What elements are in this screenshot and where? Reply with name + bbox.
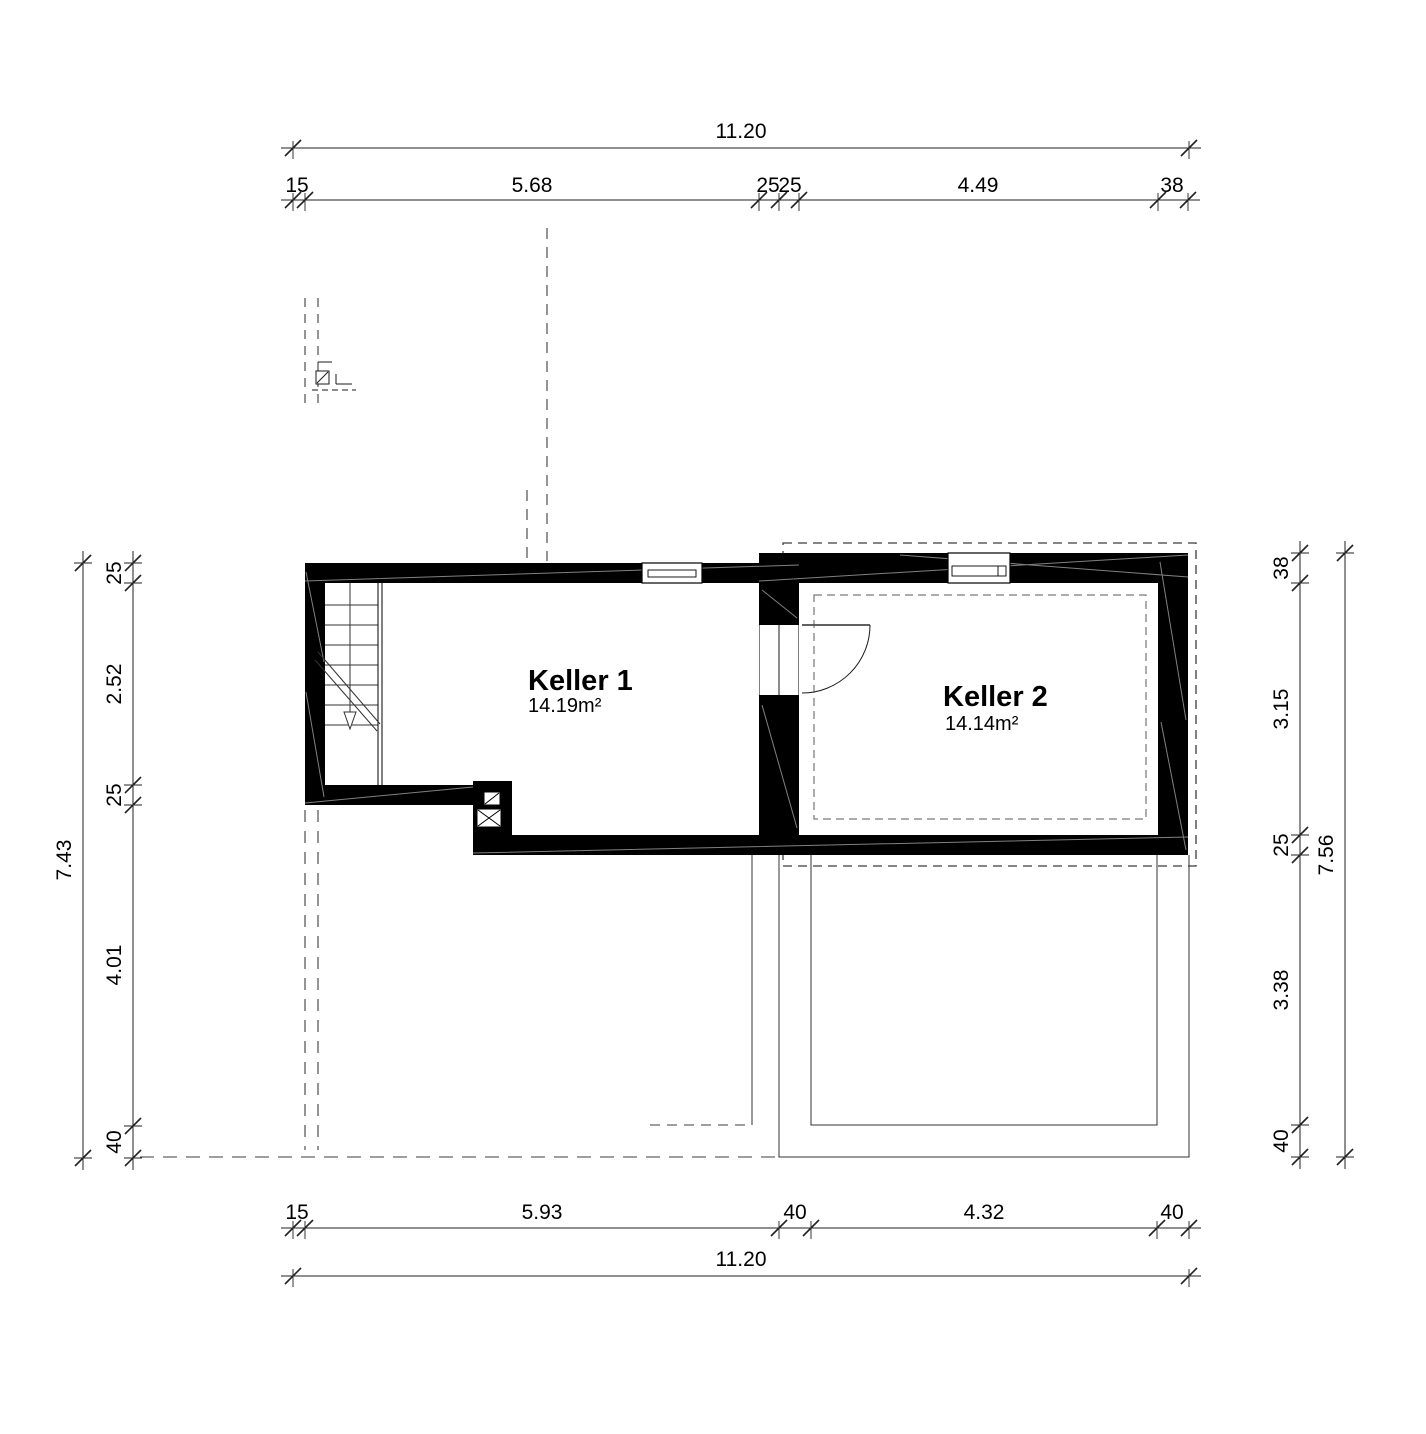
- bottom-dim-593: 5.93: [522, 1201, 563, 1224]
- left-dim-25b: 25: [103, 783, 126, 806]
- bottom-dim-40a: 40: [783, 1201, 806, 1224]
- right-dim-40: 40: [1270, 1129, 1293, 1152]
- bottom-total-dim-label: 11.20: [716, 1248, 767, 1271]
- window-keller2: [948, 553, 1010, 583]
- left-dim-40: 40: [103, 1130, 126, 1153]
- window1-frame: [642, 563, 702, 583]
- top-dim-25b: 25: [778, 174, 801, 197]
- floor-plan-drawing: Keller 1 14.19m² Keller 2 14.14m² 11.20 …: [0, 0, 1426, 1434]
- bottom-dim-40b: 40: [1160, 1201, 1183, 1224]
- room-area-keller2: 14.14m²: [945, 713, 1019, 735]
- bottom-dim-432: 4.32: [964, 1201, 1005, 1224]
- top-dim-568: 5.68: [512, 174, 553, 197]
- left-dim-401: 4.01: [103, 945, 126, 986]
- left-dim-25a: 25: [103, 561, 126, 584]
- right-dim-315: 3.15: [1270, 689, 1293, 730]
- right-total-dim-label: 7.56: [1315, 835, 1338, 876]
- right-dim-338: 3.38: [1270, 970, 1293, 1011]
- right-dim-25: 25: [1270, 833, 1293, 856]
- window-keller1: [642, 563, 702, 583]
- top-total-dim-label: 11.20: [716, 120, 767, 143]
- left-total-dim-label: 7.43: [53, 840, 76, 881]
- window2-frame: [948, 553, 1010, 583]
- top-dim-15: 15: [285, 174, 308, 197]
- bottom-dim-15: 15: [285, 1201, 308, 1224]
- top-dim-25a: 25: [756, 174, 779, 197]
- left-dim-252: 2.52: [103, 664, 126, 705]
- west-wall: [305, 563, 325, 805]
- drawing-background: [0, 0, 1426, 1434]
- room-area-keller1: 14.19m²: [528, 695, 602, 717]
- right-dim-38: 38: [1270, 556, 1293, 579]
- room-name-keller1: Keller 1: [528, 665, 633, 697]
- top-dim-38: 38: [1160, 174, 1183, 197]
- room-name-keller2: Keller 2: [943, 681, 1048, 713]
- top-dim-449: 4.49: [958, 174, 999, 197]
